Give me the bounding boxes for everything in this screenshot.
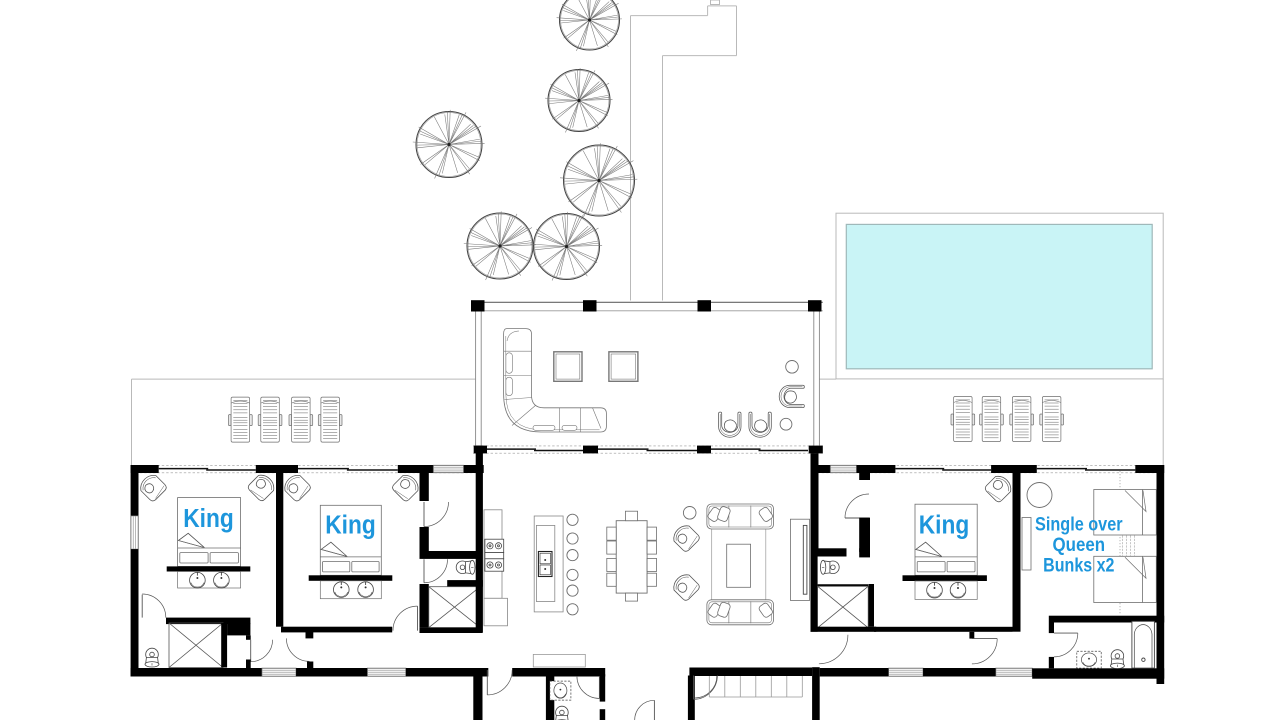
svg-text:King: King — [183, 505, 234, 533]
svg-text:King: King — [325, 512, 376, 540]
svg-text:Bunks x2: Bunks x2 — [1043, 555, 1114, 577]
svg-text:King: King — [919, 512, 970, 540]
svg-text:Queen: Queen — [1053, 534, 1106, 556]
svg-text:Single over: Single over — [1035, 514, 1123, 536]
